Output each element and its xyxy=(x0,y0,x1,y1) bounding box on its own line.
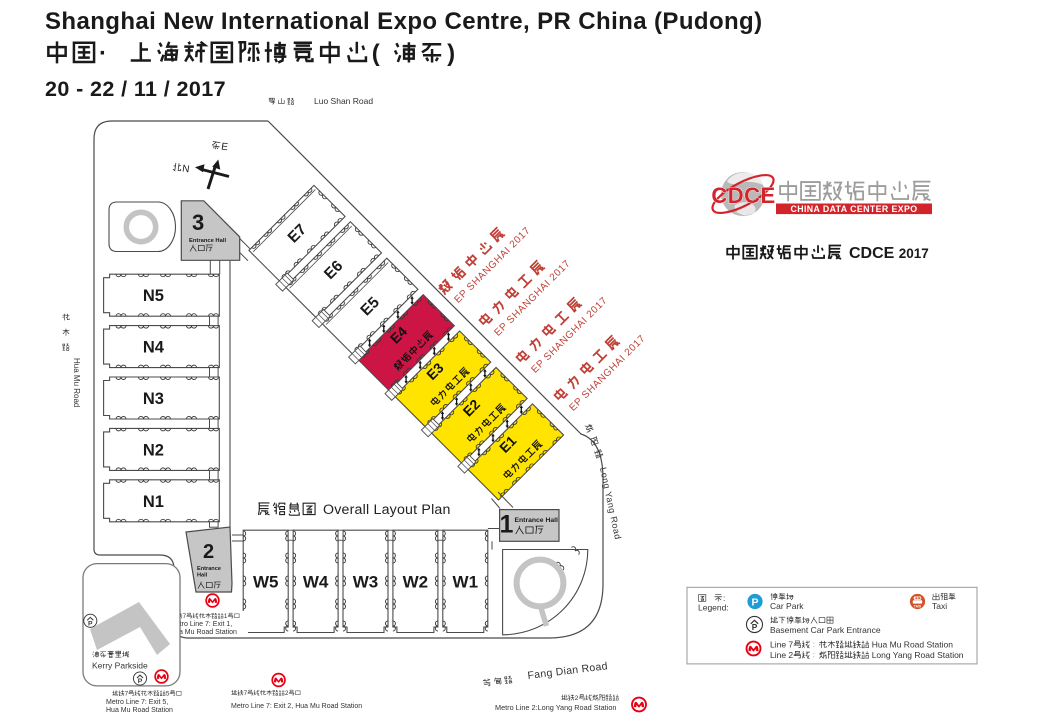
svg-text:Legend:: Legend: xyxy=(698,603,729,613)
svg-text:1: 1 xyxy=(500,511,514,539)
svg-text:Car Park: Car Park xyxy=(770,601,804,611)
svg-text:7: 7 xyxy=(183,613,187,620)
svg-text:N2: N2 xyxy=(143,441,164,459)
svg-text:1: 1 xyxy=(224,613,228,620)
svg-text:W1: W1 xyxy=(453,572,479,591)
svg-text:Taxi: Taxi xyxy=(932,601,947,611)
svg-text:Hua Mu Road Station: Hua Mu Road Station xyxy=(872,640,954,650)
svg-text:N1: N1 xyxy=(143,493,164,511)
svg-text:Luo Shan Road: Luo Shan Road xyxy=(314,96,373,106)
svg-text:2: 2 xyxy=(575,695,579,702)
svg-text:Basement Car Park Entrance: Basement Car Park Entrance xyxy=(770,625,881,635)
svg-text:Metro Line 7: Exit 2, Hua Mu R: Metro Line 7: Exit 2, Hua Mu Road Statio… xyxy=(231,703,362,710)
svg-text:20 - 22 / 11 / 2017: 20 - 22 / 11 / 2017 xyxy=(45,77,226,101)
svg-text:Long Yang Road Station: Long Yang Road Station xyxy=(872,650,964,660)
svg-text:): ) xyxy=(447,40,458,67)
svg-text:Hall: Hall xyxy=(197,573,208,579)
svg-text:Overall Layout Plan: Overall Layout Plan xyxy=(323,502,451,518)
svg-text:Metro Line 7: Exit 5,: Metro Line 7: Exit 5, xyxy=(106,699,168,706)
svg-text:Line 7: Line 7 xyxy=(770,640,793,650)
svg-text:Entrance: Entrance xyxy=(197,566,221,572)
svg-text::: : xyxy=(723,593,725,603)
svg-text:TAXI: TAXI xyxy=(914,604,922,608)
svg-text:5: 5 xyxy=(166,691,170,698)
svg-text:2: 2 xyxy=(285,690,289,697)
svg-text:Entrance Hall: Entrance Hall xyxy=(515,517,559,524)
svg-text:(: ( xyxy=(372,40,383,67)
svg-text:3: 3 xyxy=(192,210,204,235)
svg-text:Hua Mu Road: Hua Mu Road xyxy=(72,358,81,407)
svg-text:·: · xyxy=(99,40,110,67)
svg-text:Entrance Hall: Entrance Hall xyxy=(189,238,226,244)
svg-text:Kerry Parkside: Kerry Parkside xyxy=(92,661,148,671)
svg-text:7: 7 xyxy=(125,691,129,698)
svg-text:CDCE 2017: CDCE 2017 xyxy=(849,245,929,262)
svg-text:Line 2: Line 2 xyxy=(770,650,793,660)
svg-text:CHINA DATA CENTER EXPO: CHINA DATA CENTER EXPO xyxy=(790,204,917,214)
svg-text:W5: W5 xyxy=(253,572,279,591)
svg-text:Metro Line 2:Long Yang Road St: Metro Line 2:Long Yang Road Station xyxy=(495,703,616,712)
svg-text:N4: N4 xyxy=(143,339,165,357)
svg-text:2: 2 xyxy=(203,541,214,563)
svg-text:N: N xyxy=(181,163,190,175)
svg-text:N3: N3 xyxy=(143,390,164,408)
svg-text:7: 7 xyxy=(244,690,248,697)
svg-text:P: P xyxy=(751,596,758,608)
svg-text:Hua Mu Road Station: Hua Mu Road Station xyxy=(106,707,173,714)
svg-text:W3: W3 xyxy=(353,572,379,591)
svg-text:W2: W2 xyxy=(403,572,429,591)
svg-text:CDCE: CDCE xyxy=(711,183,775,208)
svg-text:W4: W4 xyxy=(303,572,329,591)
svg-text:Shanghai New International Exp: Shanghai New International Expo Centre, … xyxy=(45,8,763,35)
svg-text:N5: N5 xyxy=(143,287,164,305)
